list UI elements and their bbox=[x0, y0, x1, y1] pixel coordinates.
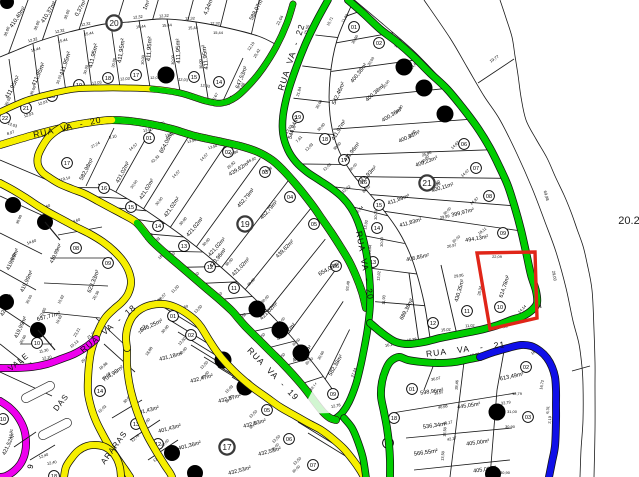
svg-text:20.2: 20.2 bbox=[618, 215, 639, 227]
svg-text:15: 15 bbox=[376, 203, 382, 209]
svg-text:22: 22 bbox=[2, 116, 8, 122]
svg-text:6,31: 6,31 bbox=[545, 406, 551, 414]
svg-text:2,19: 2,19 bbox=[547, 416, 553, 424]
svg-text:15,44: 15,44 bbox=[188, 25, 199, 30]
svg-text:30,90: 30,90 bbox=[500, 470, 511, 475]
svg-text:15,44: 15,44 bbox=[162, 22, 173, 28]
svg-text:12: 12 bbox=[430, 321, 436, 327]
svg-text:17: 17 bbox=[64, 161, 70, 167]
svg-text:09: 09 bbox=[330, 392, 336, 398]
svg-text:411,95m²: 411,95m² bbox=[176, 39, 182, 64]
svg-text:28,46: 28,46 bbox=[454, 380, 460, 390]
svg-text:10: 10 bbox=[0, 417, 6, 423]
svg-text:18: 18 bbox=[105, 76, 111, 82]
svg-text:20: 20 bbox=[109, 18, 119, 28]
svg-text:14: 14 bbox=[374, 226, 380, 232]
svg-text:17: 17 bbox=[222, 442, 232, 452]
svg-text:15: 15 bbox=[128, 205, 134, 211]
svg-text:12,32: 12,32 bbox=[133, 14, 143, 20]
svg-text:14: 14 bbox=[216, 80, 222, 86]
svg-text:30,00: 30,00 bbox=[374, 210, 378, 220]
svg-text:01: 01 bbox=[351, 25, 357, 31]
svg-text:15,02: 15,02 bbox=[441, 327, 451, 333]
svg-text:30,90: 30,90 bbox=[505, 424, 516, 429]
svg-text:08: 08 bbox=[486, 194, 492, 200]
svg-text:01: 01 bbox=[146, 136, 152, 142]
svg-text:11: 11 bbox=[231, 286, 237, 292]
svg-text:07: 07 bbox=[473, 166, 479, 172]
svg-text:12,03: 12,03 bbox=[150, 75, 160, 80]
svg-text:22,09: 22,09 bbox=[492, 254, 502, 259]
svg-text:30,00: 30,00 bbox=[141, 55, 146, 65]
svg-text:12,32: 12,32 bbox=[210, 20, 220, 25]
svg-text:11: 11 bbox=[464, 309, 470, 315]
svg-text:12,02: 12,02 bbox=[376, 271, 382, 281]
svg-text:13: 13 bbox=[181, 244, 187, 250]
svg-text:01: 01 bbox=[170, 314, 176, 320]
svg-text:30,00: 30,00 bbox=[380, 237, 384, 247]
svg-text:15,44: 15,44 bbox=[213, 30, 224, 35]
svg-text:10: 10 bbox=[497, 305, 503, 311]
svg-text:05: 05 bbox=[311, 222, 317, 228]
svg-text:18: 18 bbox=[322, 137, 328, 143]
svg-text:12,32: 12,32 bbox=[185, 16, 195, 21]
svg-text:17: 17 bbox=[133, 73, 139, 79]
svg-text:02: 02 bbox=[376, 41, 382, 47]
svg-text:05: 05 bbox=[264, 408, 270, 414]
svg-text:01: 01 bbox=[409, 387, 415, 393]
svg-text:16: 16 bbox=[101, 186, 107, 192]
svg-text:15: 15 bbox=[191, 75, 197, 81]
svg-text:07: 07 bbox=[310, 463, 316, 469]
svg-text:30,00: 30,00 bbox=[171, 55, 175, 65]
svg-text:08: 08 bbox=[73, 246, 79, 252]
svg-text:04: 04 bbox=[287, 195, 293, 201]
svg-text:09: 09 bbox=[105, 261, 111, 267]
svg-text:09: 09 bbox=[500, 231, 506, 237]
svg-text:03: 03 bbox=[525, 415, 531, 421]
svg-text:11,93: 11,93 bbox=[381, 295, 387, 305]
svg-text:06: 06 bbox=[461, 142, 467, 148]
svg-text:21: 21 bbox=[422, 178, 432, 188]
svg-text:31,00: 31,00 bbox=[507, 409, 518, 414]
svg-text:18: 18 bbox=[391, 416, 397, 422]
svg-text:02: 02 bbox=[523, 365, 529, 371]
svg-text:12,03: 12,03 bbox=[120, 76, 130, 82]
svg-text:10: 10 bbox=[34, 341, 40, 347]
svg-text:06: 06 bbox=[286, 437, 292, 443]
svg-text:12,79: 12,79 bbox=[512, 391, 522, 396]
svg-text:12,03: 12,03 bbox=[178, 77, 188, 83]
svg-text:14: 14 bbox=[97, 389, 103, 395]
svg-text:30,00: 30,00 bbox=[199, 59, 204, 69]
svg-text:13,50: 13,50 bbox=[440, 450, 446, 461]
svg-text:19: 19 bbox=[240, 219, 250, 229]
svg-text:14: 14 bbox=[155, 224, 161, 230]
svg-text:13,50: 13,50 bbox=[442, 426, 448, 437]
svg-text:12,32: 12,32 bbox=[159, 13, 169, 19]
svg-text:02: 02 bbox=[188, 333, 194, 339]
